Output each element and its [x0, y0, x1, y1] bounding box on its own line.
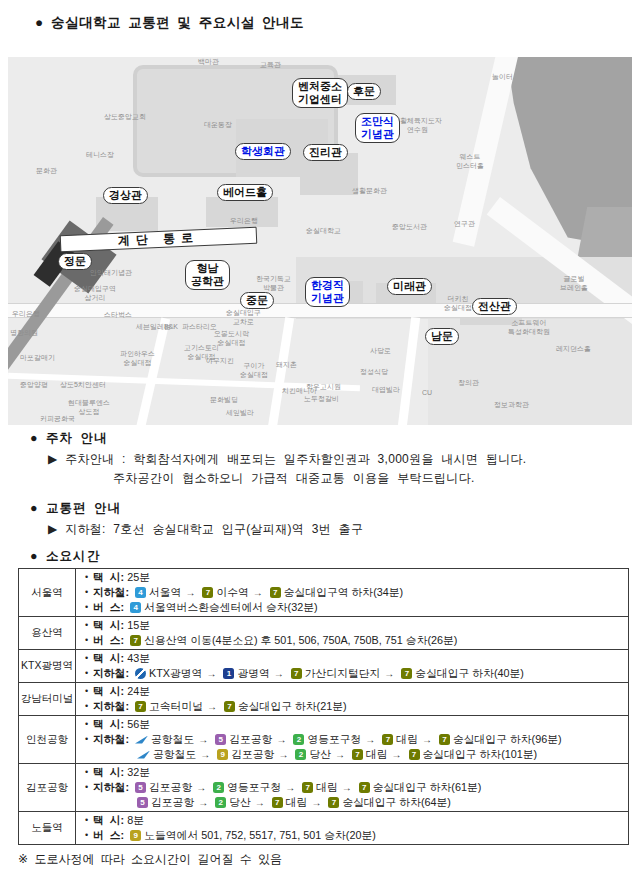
route-text: 15분 [127, 618, 150, 633]
map-bg-label: 웨스트 민스터홀 [456, 153, 484, 171]
map-bg-label: 문화관 [36, 167, 57, 176]
subway-line-2-badge: 2 [293, 734, 304, 745]
map-building-label: 정문 [58, 253, 92, 270]
subway-line-2-badge: 2 [213, 782, 224, 793]
bullet: • [80, 780, 93, 795]
subway-line-7-badge: 7 [135, 701, 146, 712]
map-bg-label: 학우고시원 [306, 383, 341, 392]
route-line: •지하철:4서울역→7이수역→7숭실대입구역 하차(34분) [80, 585, 624, 600]
bullet: • [80, 699, 93, 714]
arrow-icon: → [198, 795, 208, 810]
subway-line-9-badge: 9 [130, 830, 141, 841]
route-text: 대림 [366, 747, 388, 762]
arrow-icon: → [196, 780, 206, 795]
arrow-icon: → [278, 747, 288, 762]
map-bg-label: 소프트웨어 특성화대학원 [508, 319, 550, 337]
duration-section-header: ● 소요시간 [30, 548, 100, 565]
map-building-label: 형남 공학관 [185, 260, 230, 290]
route-text: 대림 [286, 795, 308, 810]
route-text: 김포공항 [231, 747, 274, 762]
map-bg-label: 문화빌딩 [210, 396, 238, 405]
route-text: 대림 [396, 732, 418, 747]
map-bg-label: 파스타리오 [182, 323, 217, 332]
subway-line-5-badge: 5 [215, 734, 226, 745]
route-text: 광명역 [237, 666, 269, 681]
map-bg-label: 대운동장 [204, 121, 232, 130]
subway-line-7-badge: 7 [409, 749, 420, 760]
route-text: 김포공항 [229, 732, 272, 747]
arrow-icon: → [285, 780, 295, 795]
map-bg-label: 놀이터 [492, 73, 513, 82]
route-type-label: 택 시: [93, 765, 124, 780]
bullet: • [80, 585, 93, 600]
map-bg-label: 커피공화국 [40, 415, 75, 424]
route-type-label: 버 스: [93, 600, 124, 615]
routes-cell: •택 시:24분•지하철:7고속터미널→7숭실대입구 하차(21분) [76, 683, 629, 716]
map-bg-label: 돼지촌 [276, 361, 297, 370]
arrow-icon: → [392, 747, 402, 762]
route-text: 영등포구청 [307, 732, 361, 747]
bullet: • [80, 765, 93, 780]
routes-cell: •택 시:25분•지하철:4서울역→7이수역→7숭실대입구역 하차(34분)•버… [76, 569, 629, 617]
route-text: 숭실대입구 하차(61분) [373, 780, 482, 795]
map-bg-label: 정보과학관 [494, 401, 529, 410]
arrow-icon: → [198, 732, 208, 747]
map-bg-label: 노두청갈비 [304, 395, 339, 404]
route-text: 당산 [229, 795, 251, 810]
route-type-label: 택 시: [93, 717, 124, 732]
map-bg-label: 파인하우스 숭실대점 [120, 350, 155, 368]
arrow-icon: → [185, 585, 195, 600]
route-text: 대림 [316, 780, 338, 795]
route-line: •지하철:공항철도→5김포공항→2영등포구청→7대림→7숭실대입구 하차(96분… [80, 732, 624, 747]
parking-info-line1: ▶ 주차안내 : 학회참석자에게 배포되는 일주차할인권과 3,000원을 내시… [48, 451, 526, 468]
route-text: 신용산역 이동(4분소요) 후 501, 506, 750A, 750B, 75… [144, 633, 457, 648]
map-bg-label: 명한의원 [10, 329, 38, 338]
bullet: • [80, 600, 93, 615]
map-bg-label: 생활문화관 [352, 187, 387, 196]
subway-line-7-badge: 7 [439, 734, 450, 745]
map-bg-label: 숭실대입구역 삼거리 [74, 285, 116, 303]
bullet: • [80, 570, 93, 585]
ktx-korail-icon [135, 668, 146, 679]
map-bg-label: 한국기독교 박물관 [256, 275, 291, 293]
route-type-label: 택 시: [93, 684, 124, 699]
arrow-icon: → [206, 666, 216, 681]
route-line: •택 시:8분 [80, 813, 624, 828]
map-bg-label: 오봉도시락 숭실대점 [214, 330, 249, 348]
subway-line-7-badge: 7 [352, 749, 363, 760]
subway-line-4-badge: 4 [130, 602, 141, 613]
route-text: 김포공항 [151, 795, 194, 810]
map-bg-label: 연구관 [454, 220, 475, 229]
route-line: •지하철:5김포공항→2영등포구청→7대림→7숭실대입구 하차(61분) [80, 780, 624, 795]
route-text: 서울역 [149, 585, 181, 600]
station-cell: 용산역 [19, 617, 76, 650]
route-type-label: 버 스: [93, 633, 124, 648]
map-building-label: 중문 [240, 292, 274, 309]
subway-line-5-badge: 5 [137, 797, 148, 808]
subway-line-5-badge: 5 [135, 782, 146, 793]
table-row: 서울역•택 시:25분•지하철:4서울역→7이수역→7숭실대입구역 하차(34분… [19, 569, 629, 617]
travel-time-table: 서울역•택 시:25분•지하철:4서울역→7이수역→7숭실대입구역 하차(34분… [18, 568, 629, 845]
bullet: • [80, 684, 93, 699]
arex-train-icon [137, 751, 150, 759]
routes-cell: •택 시:8분•버 스:9노들역에서 501, 752, 5517, 751, … [76, 812, 629, 845]
routes-cell: •택 시:32분•지하철:5김포공항→2영등포구청→7대림→7숭실대입구 하차(… [76, 764, 629, 812]
route-text: 24분 [127, 684, 150, 699]
route-line: •택 시:43분 [80, 651, 624, 666]
map-bg-label: 대엽빌라 [372, 386, 400, 395]
arrow-icon: → [207, 699, 217, 714]
route-text: 김포공항 [149, 780, 192, 795]
map-bg-label: 생활체육지도자 연수원 [393, 117, 442, 135]
route-line: 공항철도→9김포공항→2당산→7대림→7숭실대입구 하차(101분) [80, 747, 624, 762]
road-condition-footnote: ※ 도로사정에 따라 소요시간이 길어질 수 있음 [18, 851, 282, 868]
routes-cell: •택 시:56분•지하철:공항철도→5김포공항→2영등포구청→7대림→7숭실대입… [76, 716, 629, 764]
station-cell: 인천공항 [19, 716, 76, 764]
bullet: • [80, 813, 93, 828]
route-line: •택 시:56분 [80, 717, 624, 732]
map-bg-label: 숭실대입구 교차로 [226, 309, 261, 327]
parking-info-line2: 주차공간이 협소하오니 가급적 대중교통 이용을 부탁드립니다. [113, 470, 475, 487]
map-building-label: 후문 [347, 83, 381, 100]
map-bg-label: 창의관 [458, 379, 479, 388]
bullet: • [80, 828, 93, 843]
subway-line-7-badge: 7 [359, 782, 370, 793]
route-text: 가산디지털단지 [305, 666, 381, 681]
bullet: • [80, 651, 93, 666]
map-bg-label: 구이가 숭실대점 [240, 362, 268, 380]
subway-line-7-badge: 7 [302, 782, 313, 793]
route-line: •버 스:9노들역에서 501, 752, 5517, 751, 501 승차(… [80, 828, 624, 843]
route-line: •택 시:24분 [80, 684, 624, 699]
arrow-icon: → [253, 585, 263, 600]
route-type-label: 지하철: [93, 585, 129, 600]
map-bg-label: 숭실대학교 [306, 227, 341, 236]
bullet: • [80, 717, 93, 732]
bullet: • [80, 618, 93, 633]
map-bg-label: 세잎빌라 [226, 409, 254, 418]
subway-line-1-badge: 1 [223, 668, 234, 679]
route-text: 43분 [127, 651, 150, 666]
bullet: • [80, 666, 93, 681]
map-building-label: 남문 [425, 328, 459, 345]
subway-line-2-badge: 2 [215, 797, 226, 808]
subway-line-7-badge: 7 [130, 635, 141, 646]
route-text: 이수역 [216, 585, 248, 600]
routes-cell: •택 시:43분•지하철:KTX광명역→1광명역→7가산디지털단지→7숭실대입구… [76, 650, 629, 683]
map-bg-label: 중앙양평 [20, 381, 48, 390]
route-text: 8분 [127, 813, 144, 828]
route-line: •지하철:7고속터미널→7숭실대입구 하차(21분) [80, 699, 624, 714]
subway-line-7-badge: 7 [224, 701, 235, 712]
map-bg-label: 백마관 [198, 58, 219, 67]
map-bg-label: 정성식당 [360, 368, 388, 377]
arrow-icon: → [276, 732, 286, 747]
subway-line-7-badge: 7 [270, 587, 281, 598]
route-line: •지하철:KTX광명역→1광명역→7가산디지털단지→7숭실대입구 하차(40분) [80, 666, 624, 681]
map-building-label: 조만식 기념관 [355, 113, 400, 143]
routes-cell: •택 시:15분•버 스:7신용산역 이동(4분소요) 후 501, 506, … [76, 617, 629, 650]
subway-line-7-badge: 7 [202, 587, 213, 598]
subway-line-2-badge: 2 [295, 749, 306, 760]
station-cell: 노들역 [19, 812, 76, 845]
route-type-label: 택 시: [93, 570, 124, 585]
map-bg-label: 중앙도서관 [392, 223, 427, 232]
route-type-label: 지하철: [93, 699, 129, 714]
parking-section-header: ● 주차 안내 [30, 430, 108, 447]
route-text: 당산 [309, 747, 331, 762]
map-bg-label: 레지던스홀 [556, 345, 591, 354]
arrow-icon: → [255, 795, 265, 810]
map-bg-label: 교육관 [260, 61, 281, 70]
route-line: 5김포공항→2당산→7대림→7숭실대입구 하차(64분) [80, 795, 624, 810]
route-type-label: 지하철: [93, 780, 129, 795]
route-type-label: 지하철: [93, 666, 129, 681]
route-type-label: 택 시: [93, 618, 124, 633]
arrow-icon: → [365, 732, 375, 747]
map-bg-label: 야무지킨 [206, 357, 234, 366]
route-type-label: 지하철: [93, 732, 129, 747]
map-bg-label: 마포갈매기 [20, 354, 55, 363]
route-text: 영등포구청 [227, 780, 281, 795]
arex-train-icon [135, 736, 148, 744]
map-building-label: 경상관 [103, 187, 148, 204]
map-building-label: 베어드홀 [217, 184, 273, 201]
table-row: KTX광명역•택 시:43분•지하철:KTX광명역→1광명역→7가산디지털단지→… [19, 650, 629, 683]
route-type-label: 택 시: [93, 651, 124, 666]
arrow-icon: → [422, 732, 432, 747]
subway-line-4-badge: 4 [135, 587, 146, 598]
map-building-label: 계단 통로 [60, 227, 258, 253]
route-line: •택 시:25분 [80, 570, 624, 585]
map-bg-label: 현대블루엔스 상도점 [68, 399, 110, 417]
station-cell: 김포공항 [19, 764, 76, 812]
map-building-label: 전산관 [472, 298, 517, 315]
route-text: 공항철도 [153, 747, 196, 762]
map-building-label: 벤처중소 기업센터 [292, 78, 348, 108]
map-bg-label: 더키친 숭실대점 [444, 295, 472, 313]
transport-info-line1: ▶ 지하철: 7호선 숭실대학교 입구(살피재)역 3번 출구 [48, 521, 363, 538]
route-text: 숭실대입구 하차(96분) [453, 732, 562, 747]
route-text: 서울역버스환승센터에서 승차(32분) [144, 600, 317, 615]
route-line: •버 스:7신용산역 이동(4분소요) 후 501, 506, 750A, 75… [80, 633, 624, 648]
map-bg-label: 안익태기념관 [90, 269, 132, 278]
route-text: 노들역에서 501, 752, 5517, 751, 501 승차(20분) [144, 828, 376, 843]
route-text: 25분 [127, 570, 150, 585]
route-text: 32분 [127, 765, 150, 780]
route-text: 숭실대입구 하차(101분) [423, 747, 538, 762]
table-row: 강남터미널•택 시:24분•지하철:7고속터미널→7숭실대입구 하차(21분) [19, 683, 629, 716]
table-row: 노들역•택 시:8분•버 스:9노들역에서 501, 752, 5517, 75… [19, 812, 629, 845]
arrow-icon: → [384, 666, 394, 681]
route-type-label: 택 시: [93, 813, 124, 828]
campus-map: 백마관교육관상도중앙교회대운동장테니스장문화관놀이터생활체육지도자 연수원웨스트… [8, 57, 632, 425]
subway-line-7-badge: 7 [272, 797, 283, 808]
subway-line-7-badge: 7 [382, 734, 393, 745]
route-text: 숭실대입구 하차(21분) [238, 699, 347, 714]
arrow-icon: → [335, 747, 345, 762]
map-building-label: 미래관 [387, 278, 432, 295]
map-bg-label: 우리은행 [12, 310, 40, 319]
map-building-label: 한경직 기념관 [305, 277, 350, 307]
map-bg-label: 상도5치안센터 [60, 381, 106, 390]
subway-line-9-badge: 9 [217, 749, 228, 760]
map-building-label: 진리관 [303, 144, 348, 161]
route-line: •택 시:15분 [80, 618, 624, 633]
route-text: 숭실대입구 하차(40분) [415, 666, 524, 681]
route-line: •택 시:32분 [80, 765, 624, 780]
bullet: • [80, 732, 93, 747]
campus-map-labels: 백마관교육관상도중앙교회대운동장테니스장문화관놀이터생활체육지도자 연수원웨스트… [8, 57, 632, 425]
route-text: 공항철도 [151, 732, 194, 747]
route-type-label: 버 스: [93, 828, 124, 843]
table-row: 김포공항•택 시:32분•지하철:5김포공항→2영등포구청→7대림→7숭실대입구… [19, 764, 629, 812]
map-bg-label: 사당로 [370, 347, 391, 356]
map-bg-label: 글로벌 브레인홀 [560, 275, 588, 293]
bullet: • [80, 633, 93, 648]
route-text: 고속터미널 [149, 699, 203, 714]
map-bg-label: 상도중앙교회 [104, 113, 146, 122]
map-building-label: 학생회관 [235, 143, 291, 160]
duration-table-body: 서울역•택 시:25분•지하철:4서울역→7이수역→7숭실대입구역 하차(34분… [19, 569, 629, 845]
route-text: 숭실대입구 하차(64분) [342, 795, 451, 810]
page-title: ● 숭실대학교 교통편 및 주요시설 안내도 [35, 14, 304, 32]
route-text: 56분 [127, 717, 150, 732]
table-row: 용산역•택 시:15분•버 스:7신용산역 이동(4분소요) 후 501, 50… [19, 617, 629, 650]
subway-line-7-badge: 7 [328, 797, 339, 808]
subway-line-7-badge: 7 [291, 668, 302, 679]
transport-section-header: ● 교통편 안내 [30, 500, 121, 517]
station-cell: 서울역 [19, 569, 76, 617]
arrow-icon: → [274, 666, 284, 681]
map-bg-label: B&K [164, 323, 178, 332]
map-bg-label: 우리은행 [230, 217, 258, 226]
arrow-icon: → [342, 780, 352, 795]
route-line: •버 스:4서울역버스환승센터에서 승차(32분) [80, 600, 624, 615]
subway-line-7-badge: 7 [401, 668, 412, 679]
route-text: 숭실대입구역 하차(34분) [284, 585, 403, 600]
station-cell: KTX광명역 [19, 650, 76, 683]
arrow-icon: → [311, 795, 321, 810]
table-row: 인천공항•택 시:56분•지하철:공항철도→5김포공항→2영등포구청→7대림→7… [19, 716, 629, 764]
route-text: KTX광명역 [149, 666, 202, 681]
map-bg-label: 테니스장 [86, 151, 114, 160]
map-bg-label: 스타벅스 [104, 311, 132, 320]
map-bg-label: CU [422, 389, 432, 398]
station-cell: 강남터미널 [19, 683, 76, 716]
arrow-icon: → [200, 747, 210, 762]
